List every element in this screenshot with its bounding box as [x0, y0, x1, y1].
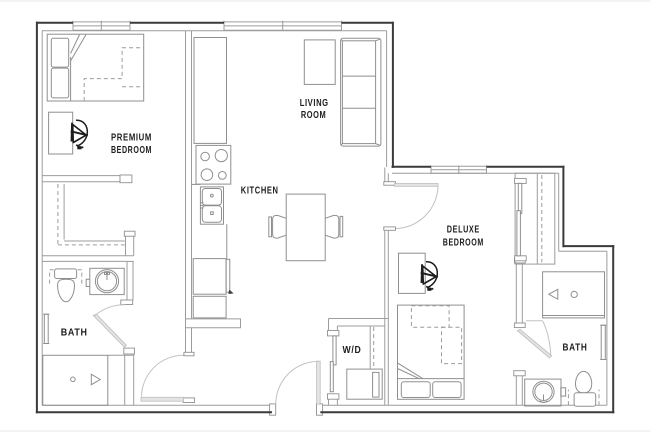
svg-text:LIVING: LIVING [300, 98, 329, 109]
svg-text:BEDROOM: BEDROOM [443, 238, 484, 249]
svg-text:BATH: BATH [61, 328, 88, 339]
svg-text:BATH: BATH [563, 343, 588, 354]
svg-text:KITCHEN: KITCHEN [241, 185, 279, 196]
svg-text:BEDROOM: BEDROOM [111, 145, 152, 156]
svg-text:PREMIUM: PREMIUM [111, 132, 152, 143]
svg-text:W/D: W/D [343, 345, 362, 356]
svg-text:DELUXE: DELUXE [447, 224, 480, 235]
svg-text:ROOM: ROOM [301, 110, 327, 121]
